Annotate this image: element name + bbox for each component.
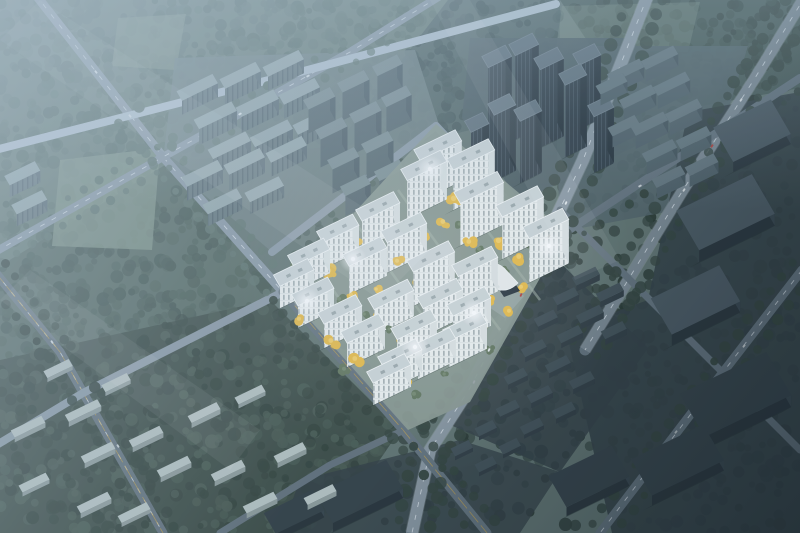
aerial-rendering-canvas xyxy=(0,0,800,533)
blue-tint xyxy=(0,0,800,533)
haze-overlay xyxy=(0,0,800,533)
masterplan-rendering xyxy=(0,0,800,533)
